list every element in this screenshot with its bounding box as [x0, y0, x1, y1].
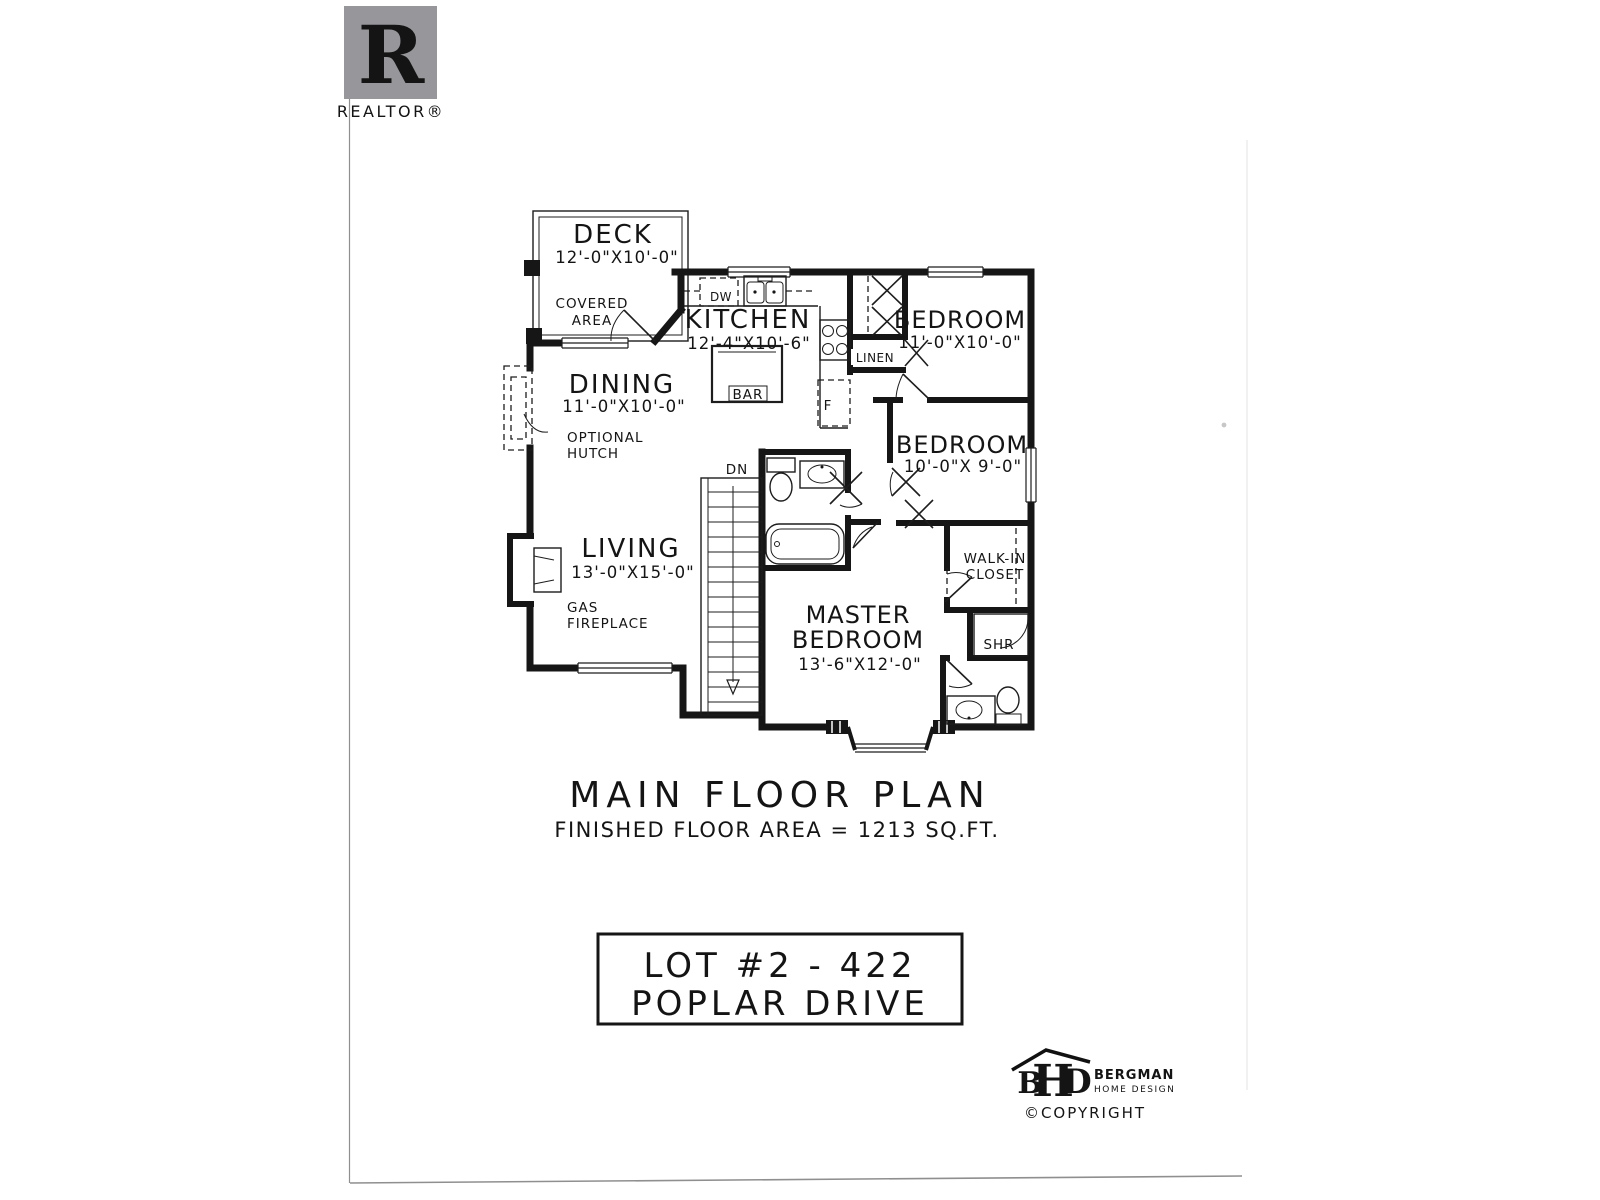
copyright-label: ©COPYRIGHT: [1024, 1104, 1146, 1122]
stairs-down-label: DN: [726, 462, 749, 478]
dishwasher-label: DW: [710, 290, 732, 304]
floor-plan-drawing: R REALTOR®: [0, 0, 1600, 1200]
realtor-logo-letter: R: [358, 8, 425, 102]
shower-label: SHR: [983, 637, 1014, 653]
kitchen-dims: 12'-4"X10'-6": [687, 334, 810, 353]
kitchen-label: KITCHEN: [685, 305, 812, 335]
master-bedroom-label-1: MASTER: [806, 601, 911, 629]
bergman-name: BERGMAN: [1094, 1068, 1174, 1083]
bedroom2-label: BEDROOM: [896, 431, 1028, 459]
gas-fireplace: [510, 536, 561, 604]
walkin-closet-label-2: CLOSET: [966, 567, 1024, 583]
kitchen-sink: [744, 276, 786, 306]
bedroom1-label: BEDROOM: [894, 306, 1026, 334]
bathroom-sink: [800, 461, 844, 488]
linen-label: LINEN: [856, 351, 894, 365]
ensuite-sink: [947, 696, 995, 724]
bergman-tagline: HOME DESIGN: [1094, 1085, 1175, 1095]
deck-post: [524, 260, 540, 276]
scan-speck: [1222, 423, 1227, 428]
dining-label: DINING: [569, 370, 675, 400]
deck-label: DECK: [573, 220, 653, 250]
ensuite-toilet: [996, 687, 1021, 725]
bathtub: [766, 524, 844, 564]
bedroom2-dims: 10'-0"X 9'-0": [904, 457, 1022, 476]
master-bedroom-dims: 13'-6"X12'-0": [798, 655, 921, 674]
living-label: LIVING: [581, 534, 680, 564]
hutch-leader-line: [524, 414, 548, 432]
master-bedroom-label-2: BEDROOM: [792, 626, 924, 654]
gas-fireplace-label-1: GAS: [567, 600, 598, 616]
covered-area-label-1: COVERED: [556, 296, 629, 312]
bergman-letter-d: D: [1062, 1062, 1091, 1102]
bay-window-jambs: [826, 720, 955, 734]
scanned-floor-plan-page: R REALTOR®: [0, 0, 1600, 1200]
bar-label: BAR: [733, 387, 764, 403]
lot-line2: POPLAR DRIVE: [631, 984, 929, 1024]
living-dims: 13'-0"X15'-0": [571, 563, 694, 582]
bedroom1-dims: 11'-0"X10'-0": [898, 333, 1021, 352]
walkin-closet-label-1: WALK-IN: [964, 551, 1027, 567]
lot-address-box: LOT #2 - 422 POPLAR DRIVE: [598, 934, 962, 1024]
dining-dims: 11'-0"X10'-0": [562, 397, 685, 416]
lot-line1: LOT #2 - 422: [644, 946, 917, 986]
plan-subtitle: FINISHED FLOOR AREA = 1213 SQ.FT.: [554, 818, 999, 842]
bergman-logo: B H D BERGMAN HOME DESIGN ©COPYRIGHT: [1012, 1050, 1175, 1122]
covered-area-label-2: AREA: [572, 313, 612, 329]
gas-fireplace-label-2: FIREPLACE: [567, 616, 649, 632]
stove: [820, 320, 850, 360]
fridge-label: F: [824, 398, 833, 414]
toilet: [767, 458, 795, 501]
optional-hutch-outline: [504, 366, 548, 450]
optional-hutch-label-1: OPTIONAL: [567, 430, 643, 446]
optional-hutch-label-2: HUTCH: [567, 446, 619, 462]
realtor-logo-text: REALTOR®: [337, 102, 445, 121]
realtor-logo: R REALTOR®: [337, 6, 445, 121]
plan-title: MAIN FLOOR PLAN: [569, 775, 990, 816]
room-labels: DECK 12'-0"X10'-0" COVERED AREA KITCHEN …: [555, 220, 1028, 674]
plan-titles: MAIN FLOOR PLAN FINISHED FLOOR AREA = 12…: [554, 775, 999, 842]
stairs: [701, 478, 762, 715]
ensuite-fixtures: [947, 614, 1028, 725]
deck-dims: 12'-0"X10'-0": [555, 248, 678, 267]
